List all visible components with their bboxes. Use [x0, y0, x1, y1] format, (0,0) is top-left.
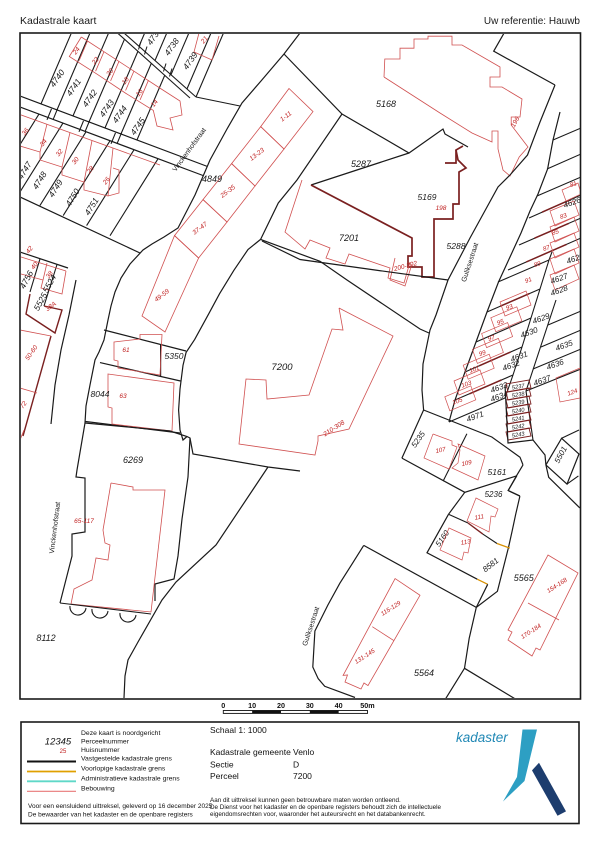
svg-text:8112: 8112	[36, 633, 55, 643]
svg-text:4849: 4849	[202, 174, 222, 184]
svg-text:Perceelnummer: Perceelnummer	[81, 739, 130, 746]
svg-text:65-117: 65-117	[74, 518, 94, 525]
svg-text:40: 40	[335, 701, 343, 710]
svg-text:0: 0	[221, 701, 225, 710]
svg-text:25: 25	[60, 749, 67, 755]
svg-text:7200: 7200	[271, 362, 293, 373]
svg-text:5236: 5236	[485, 490, 503, 499]
svg-text:De Dienst voor het kadaster en: De Dienst voor het kadaster en de openba…	[210, 804, 442, 811]
svg-text:5287: 5287	[351, 159, 372, 169]
svg-text:Voor een eensluidend uittrekse: Voor een eensluidend uittreksel, gelever…	[28, 803, 213, 810]
svg-text:De bewaarder van het kadaster: De bewaarder van het kadaster en de open…	[28, 812, 194, 819]
svg-text:Deze kaart is noordgericht: Deze kaart is noordgericht	[81, 730, 160, 737]
svg-text:5161: 5161	[488, 467, 507, 477]
svg-text:Administratieve kadastrale gre: Administratieve kadastrale grens	[81, 776, 180, 783]
svg-text:198: 198	[436, 205, 447, 212]
svg-text:Huisnummer: Huisnummer	[81, 747, 120, 754]
svg-text:Vastgestelde kadastrale grens: Vastgestelde kadastrale grens	[81, 756, 173, 763]
svg-text:Voorlopige kadastrale grens: Voorlopige kadastrale grens	[81, 766, 166, 773]
svg-text:5169: 5169	[418, 192, 437, 202]
svg-text:61: 61	[122, 347, 130, 354]
svg-text:kadaster: kadaster	[456, 730, 508, 745]
svg-text:Sectie: Sectie	[210, 760, 234, 770]
svg-text:20: 20	[277, 701, 285, 710]
svg-text:5168: 5168	[376, 99, 396, 109]
svg-text:D: D	[293, 760, 299, 770]
svg-text:8044: 8044	[91, 389, 110, 399]
svg-text:Kadastrale gemeente: Kadastrale gemeente	[210, 747, 291, 757]
svg-text:Kadastrale kaart: Kadastrale kaart	[20, 15, 97, 27]
svg-text:Venlo: Venlo	[293, 747, 315, 757]
svg-text:Bebouwing: Bebouwing	[81, 786, 115, 793]
svg-text:5288: 5288	[447, 241, 466, 251]
svg-text:63: 63	[119, 393, 127, 400]
svg-text:6269: 6269	[123, 455, 143, 465]
svg-text:eigendomsrechten voor, waarond: eigendomsrechten voor, waaronder het aut…	[210, 811, 426, 818]
svg-text:5565: 5565	[514, 573, 535, 583]
svg-text:12345: 12345	[45, 737, 72, 748]
svg-text:Aan dit uittreksel kunnen geen: Aan dit uittreksel kunnen geen betrouwba…	[210, 797, 401, 804]
svg-text:7201: 7201	[339, 233, 359, 243]
svg-text:Uw referentie: Hauwb: Uw referentie: Hauwb	[484, 16, 581, 27]
svg-text:5564: 5564	[414, 668, 434, 678]
svg-text:Perceel: Perceel	[210, 771, 239, 781]
svg-text:10: 10	[248, 701, 256, 710]
svg-text:5350: 5350	[165, 351, 184, 361]
svg-text:30: 30	[306, 701, 314, 710]
svg-text:7200: 7200	[293, 771, 312, 781]
svg-text:Schaal 1: 1000: Schaal 1: 1000	[210, 725, 267, 735]
svg-text:50m: 50m	[360, 701, 374, 710]
